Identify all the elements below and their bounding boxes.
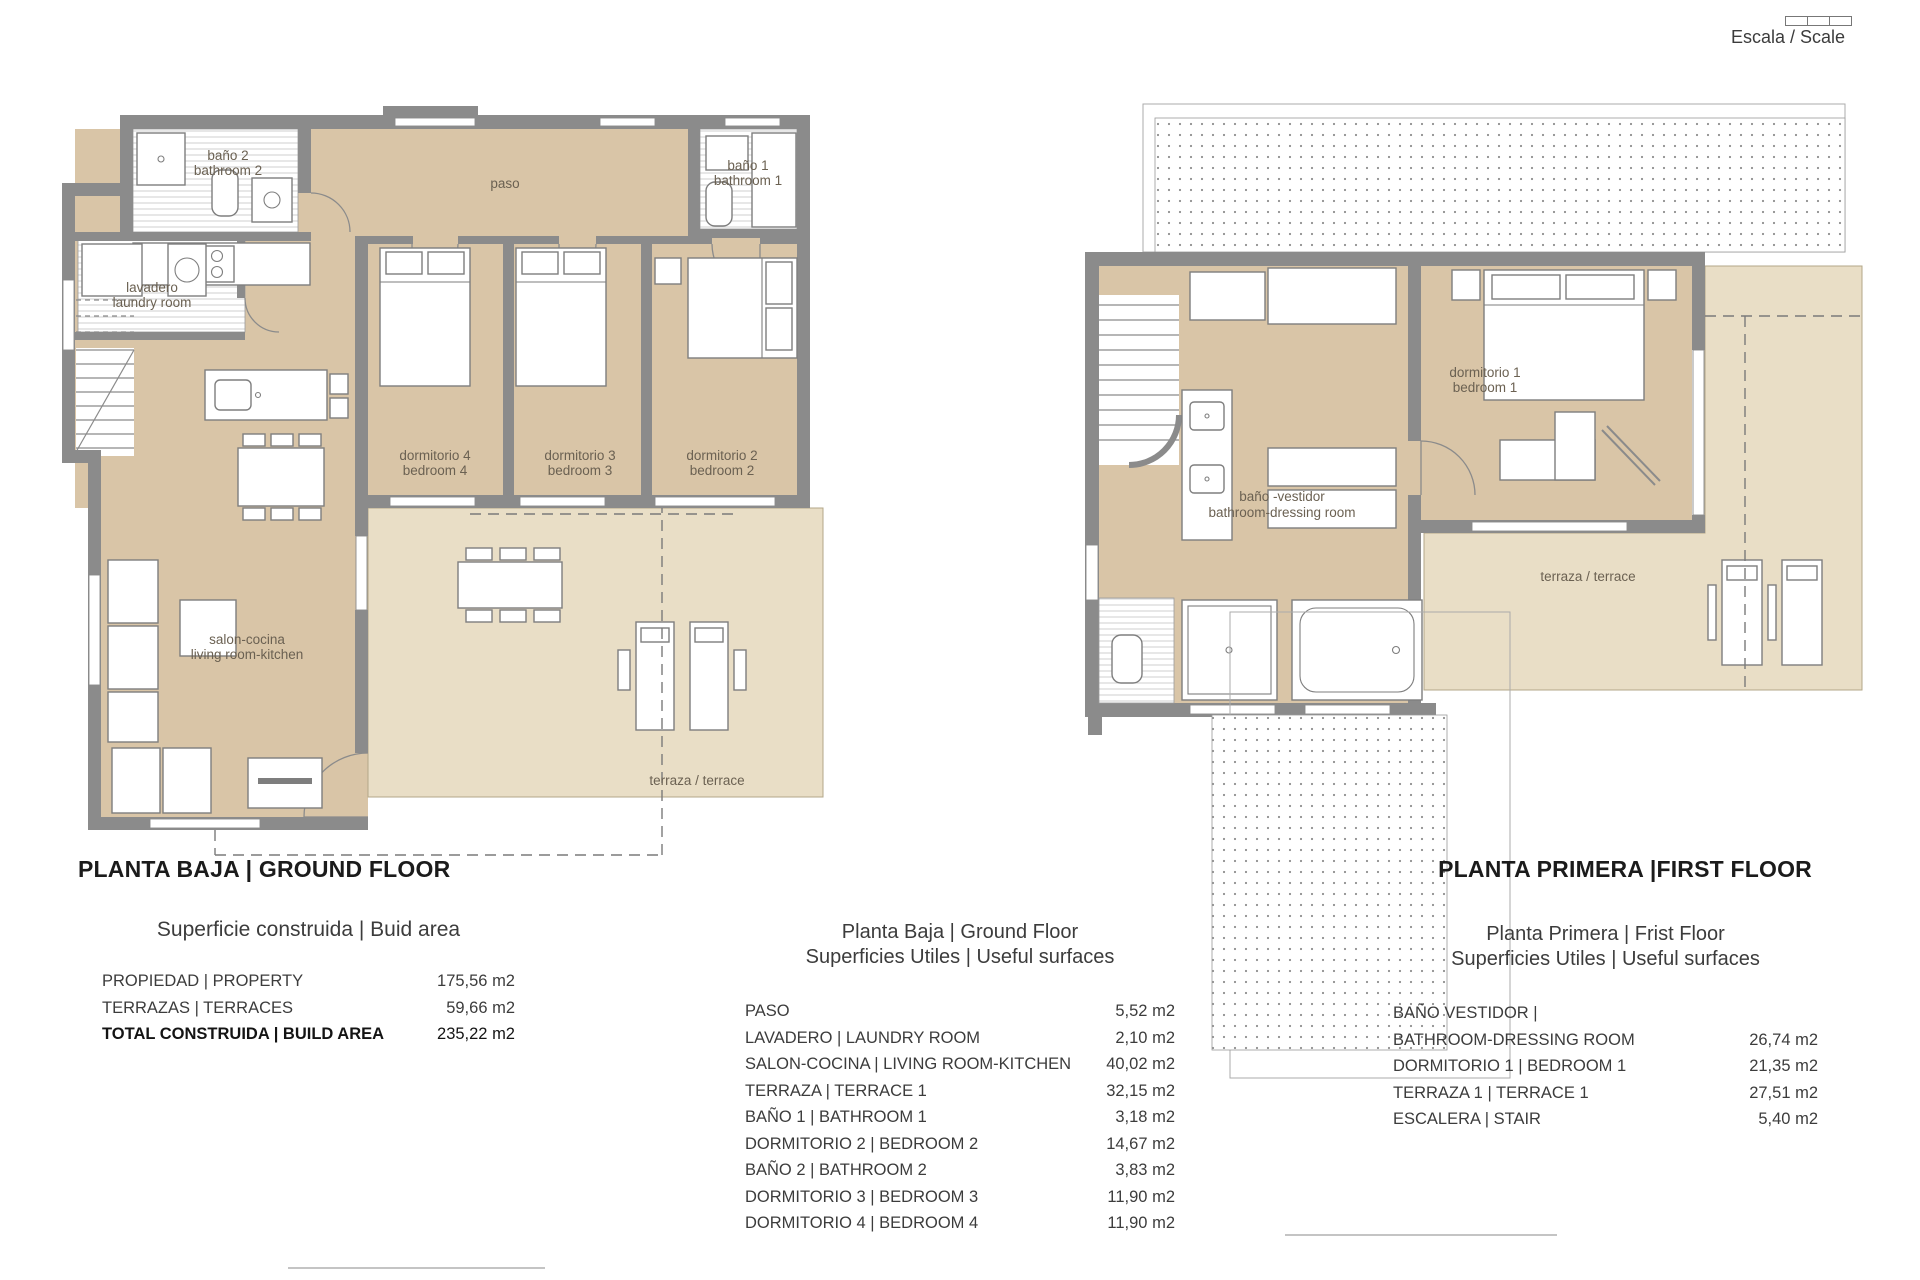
- table-row: BAÑO VESTIDOR |: [1393, 1000, 1818, 1027]
- row-value: 5,40 m2: [1758, 1106, 1818, 1133]
- row-label: DORMITORIO 4 | BEDROOM 4: [745, 1210, 978, 1237]
- built-area-rows: PROPIEDAD | PROPERTY 175,56 m2 TERRAZAS …: [102, 968, 515, 1048]
- table-row: BAÑO 1 | BATHROOM 13,18 m2: [745, 1104, 1175, 1131]
- table-row: DORMITORIO 3 | BEDROOM 311,90 m2: [745, 1184, 1175, 1211]
- row-label: BAÑO 2 | BATHROOM 2: [745, 1157, 927, 1184]
- table-row: TERRAZA 1 | TERRACE 127,51 m2: [1393, 1080, 1818, 1107]
- row-value: 32,15 m2: [1106, 1078, 1175, 1105]
- label-bano-1: baño 1: [727, 158, 768, 173]
- label-terraza-gf: terraza / terrace: [649, 773, 744, 788]
- scale-label: Escala / Scale: [1645, 27, 1845, 48]
- label-dormitorio-2: dormitorio 2: [686, 448, 757, 463]
- row-value: 59,66 m2: [446, 995, 515, 1022]
- label-bedroom-4: bedroom 4: [403, 463, 468, 478]
- label-dormitorio-3: dormitorio 3: [544, 448, 615, 463]
- row-value: 3,18 m2: [1115, 1104, 1175, 1131]
- row-label: LAVADERO | LAUNDRY ROOM: [745, 1025, 980, 1052]
- row-label: SALON-COCINA | LIVING ROOM-KITCHEN: [745, 1051, 1071, 1078]
- row-value: 11,90 m2: [1107, 1210, 1175, 1237]
- row-label: ESCALERA | STAIR: [1393, 1106, 1541, 1133]
- label-laundry-room: laundry room: [113, 295, 192, 310]
- label-living-room-kitchen: living room-kitchen: [191, 647, 304, 662]
- label-bathroom-2: bathroom 2: [194, 163, 262, 178]
- scale-bar-segment: [1829, 16, 1852, 26]
- row-label: PASO: [745, 998, 790, 1025]
- gf-useful-rows: PASO5,52 m2 LAVADERO | LAUNDRY ROOM2,10 …: [745, 998, 1175, 1237]
- label-salon-cocina: salon-cocina: [209, 632, 285, 647]
- gf-useful-table: Planta Baja | Ground Floor Superficies U…: [745, 920, 1175, 1237]
- scale-bar: [1786, 16, 1852, 26]
- table-row: BATHROOM-DRESSING ROOM26,74 m2: [1393, 1027, 1818, 1054]
- label-lavadero: lavadero: [126, 280, 178, 295]
- table-row: PASO5,52 m2: [745, 998, 1175, 1025]
- table-row: BAÑO 2 | BATHROOM 23,83 m2: [745, 1157, 1175, 1184]
- gf-useful-title-line1: Planta Baja | Ground Floor: [745, 920, 1175, 945]
- row-label: DORMITORIO 3 | BEDROOM 3: [745, 1184, 978, 1211]
- ff-roof-dotted: [1155, 118, 1845, 252]
- ground-floor-plan: baño 2 bathroom 2 baño 1 bathroom 1 paso…: [55, 100, 845, 880]
- row-value: 2,10 m2: [1115, 1025, 1175, 1052]
- row-value: 40,02 m2: [1106, 1051, 1175, 1078]
- row-value: 235,22 m2: [437, 1021, 515, 1048]
- label-bano-vestidor: baño -vestidor: [1239, 489, 1325, 504]
- row-value: 27,51 m2: [1749, 1080, 1818, 1107]
- row-label: DORMITORIO 1 | BEDROOM 1: [1393, 1053, 1626, 1080]
- row-value: 3,83 m2: [1115, 1157, 1175, 1184]
- ff-useful-title: Planta Primera | Frist Floor Superficies…: [1393, 922, 1818, 972]
- table-row: TERRAZA | TERRACE 132,15 m2: [745, 1078, 1175, 1105]
- label-bathroom-1: bathroom 1: [714, 173, 782, 188]
- frame-line: [1285, 1234, 1557, 1236]
- row-value: 5,52 m2: [1115, 998, 1175, 1025]
- row-label: TERRAZA | TERRACE 1: [745, 1078, 927, 1105]
- label-dormitorio-1: dormitorio 1: [1449, 365, 1520, 380]
- table-row: SALON-COCINA | LIVING ROOM-KITCHEN40,02 …: [745, 1051, 1175, 1078]
- row-label: BATHROOM-DRESSING ROOM: [1393, 1027, 1635, 1054]
- ff-stairs: [1099, 295, 1179, 465]
- row-label: PROPIEDAD | PROPERTY: [102, 968, 303, 995]
- label-paso: paso: [490, 176, 519, 191]
- row-label: TERRAZA 1 | TERRACE 1: [1393, 1080, 1589, 1107]
- table-row: PROPIEDAD | PROPERTY 175,56 m2: [102, 968, 515, 995]
- scale-bar-segment: [1785, 16, 1808, 26]
- table-row: LAVADERO | LAUNDRY ROOM2,10 m2: [745, 1025, 1175, 1052]
- frame-line: [288, 1267, 545, 1269]
- row-label: DORMITORIO 2 | BEDROOM 2: [745, 1131, 978, 1158]
- label-dormitorio-4: dormitorio 4: [399, 448, 471, 463]
- row-label: BAÑO 1 | BATHROOM 1: [745, 1104, 927, 1131]
- ff-useful-title-line2: Superficies Utiles | Useful surfaces: [1393, 947, 1818, 972]
- table-row: DORMITORIO 2 | BEDROOM 214,67 m2: [745, 1131, 1175, 1158]
- label-bedroom-1: bedroom 1: [1453, 380, 1518, 395]
- row-label: BAÑO VESTIDOR |: [1393, 1000, 1538, 1027]
- gf-useful-title-line2: Superficies Utiles | Useful surfaces: [745, 945, 1175, 970]
- label-bano-2: baño 2: [207, 148, 248, 163]
- ground-floor-title: PLANTA BAJA | GROUND FLOOR: [78, 856, 450, 883]
- first-floor-title: PLANTA PRIMERA |FIRST FLOOR: [1190, 856, 1812, 883]
- table-row: DORMITORIO 1 | BEDROOM 121,35 m2: [1393, 1053, 1818, 1080]
- row-value: 11,90 m2: [1107, 1184, 1175, 1211]
- built-area-table: Superficie construida | Buid area PROPIE…: [102, 918, 515, 1048]
- label-bedroom-3: bedroom 3: [548, 463, 613, 478]
- label-terraza-ff: terraza / terrace: [1540, 569, 1635, 584]
- scale-bar-segment: [1807, 16, 1830, 26]
- gf-useful-title: Planta Baja | Ground Floor Superficies U…: [745, 920, 1175, 970]
- row-value: 175,56 m2: [437, 968, 515, 995]
- row-value: 21,35 m2: [1749, 1053, 1818, 1080]
- label-bathroom-dressing-room: bathroom-dressing room: [1208, 505, 1355, 520]
- row-value: 14,67 m2: [1106, 1131, 1175, 1158]
- table-row: ESCALERA | STAIR5,40 m2: [1393, 1106, 1818, 1133]
- table-row-total: TOTAL CONSTRUIDA | BUILD AREA 235,22 m2: [102, 1021, 515, 1048]
- ff-useful-title-line1: Planta Primera | Frist Floor: [1393, 922, 1818, 947]
- table-row: TERRAZAS | TERRACES 59,66 m2: [102, 995, 515, 1022]
- row-value: 26,74 m2: [1749, 1027, 1818, 1054]
- row-label: TERRAZAS | TERRACES: [102, 995, 293, 1022]
- table-row: DORMITORIO 4 | BEDROOM 411,90 m2: [745, 1210, 1175, 1237]
- ff-useful-rows: BAÑO VESTIDOR | BATHROOM-DRESSING ROOM26…: [1393, 1000, 1818, 1133]
- built-area-table-title: Superficie construida | Buid area: [102, 918, 515, 942]
- label-bedroom-2: bedroom 2: [690, 463, 755, 478]
- ff-useful-table: Planta Primera | Frist Floor Superficies…: [1393, 922, 1818, 1133]
- row-label: TOTAL CONSTRUIDA | BUILD AREA: [102, 1021, 384, 1048]
